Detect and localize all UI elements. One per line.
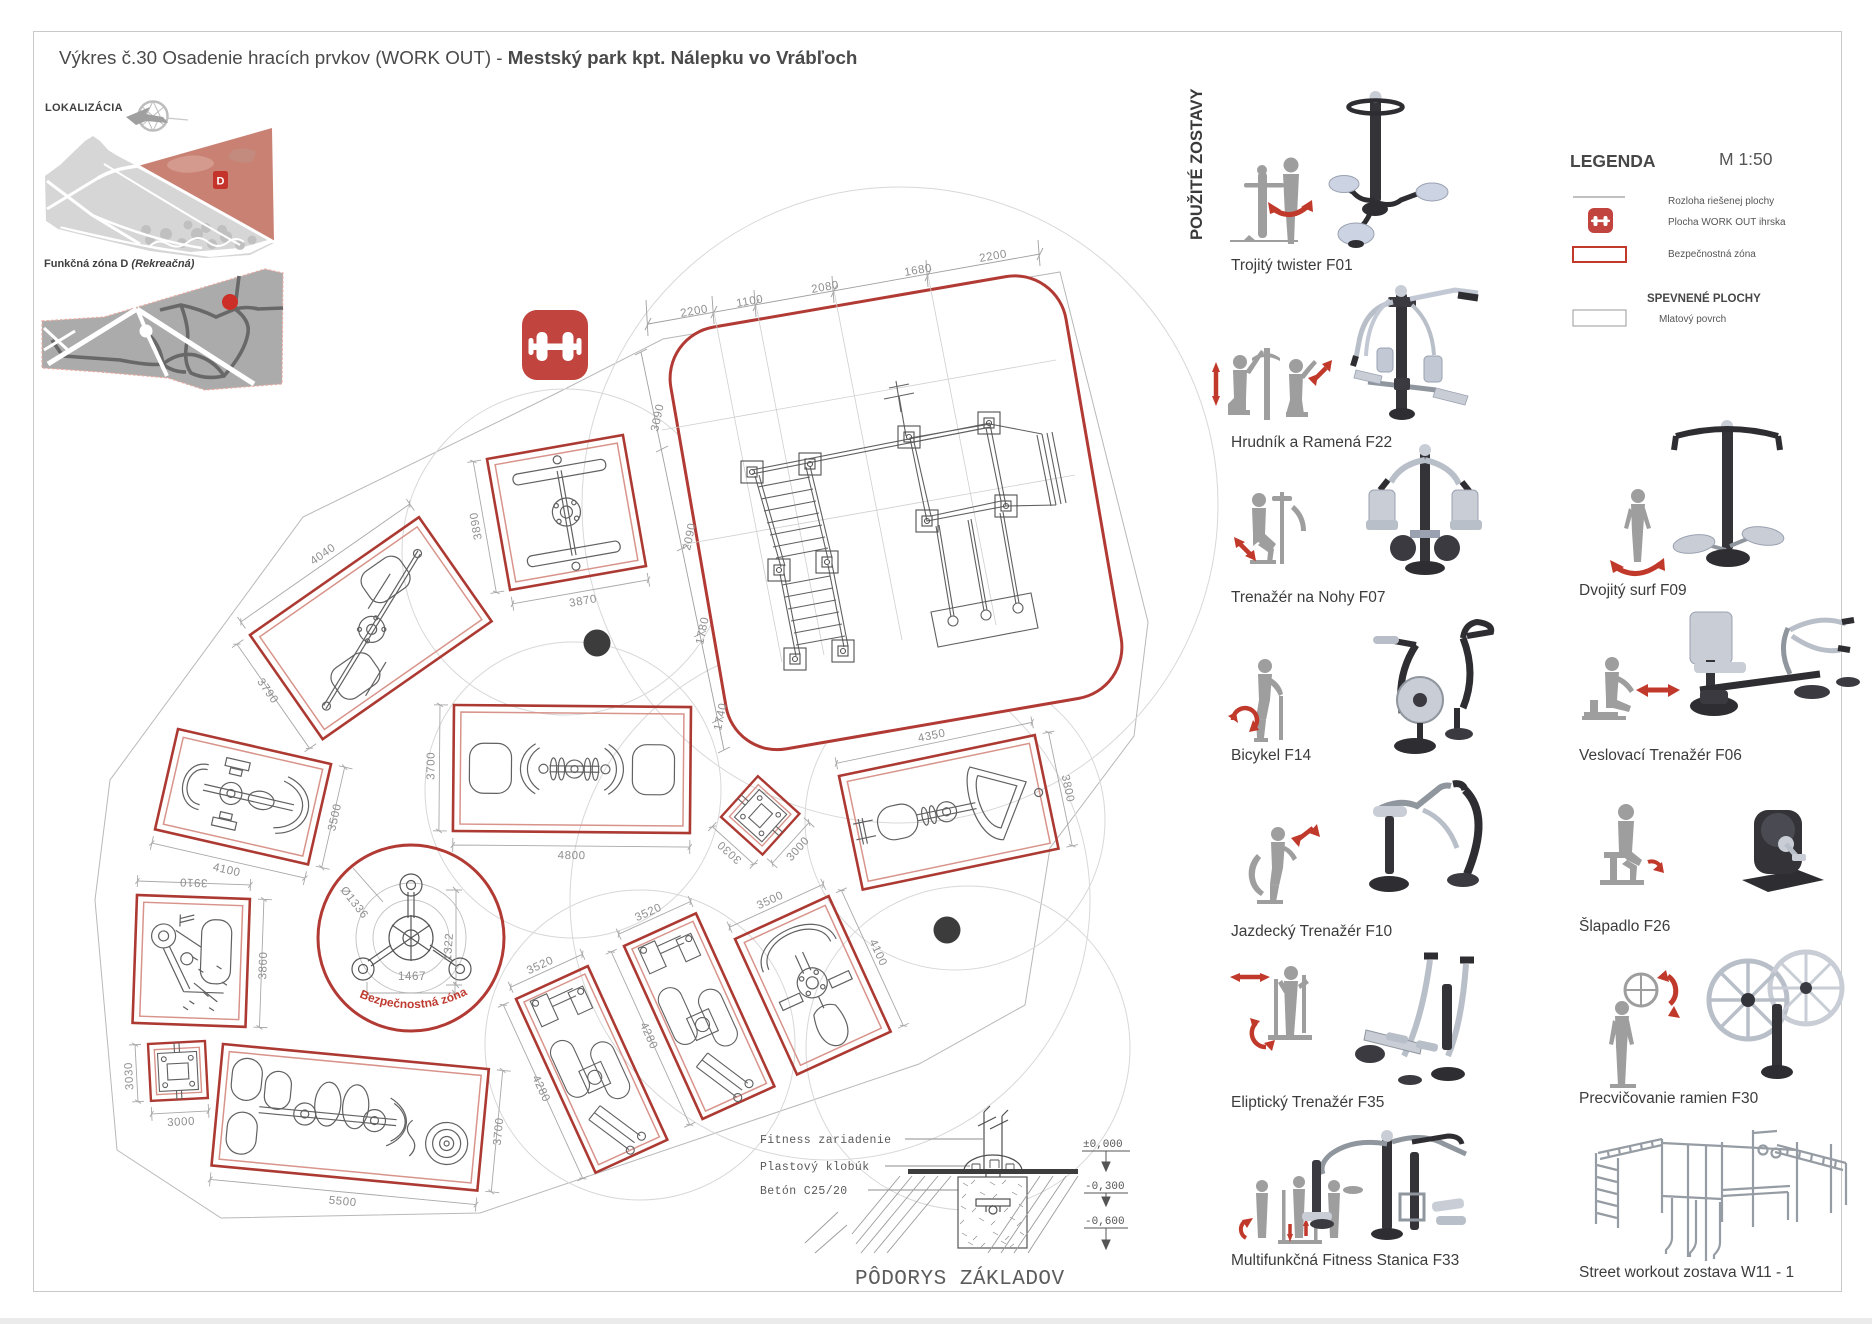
svg-text:Fitness zariadenie: Fitness zariadenie: [760, 1134, 891, 1147]
svg-text:SPEVNENÉ PLOCHY: SPEVNENÉ PLOCHY: [1647, 292, 1761, 305]
svg-text:Jazdecký Trenažér F10: Jazdecký Trenažér F10: [1231, 923, 1392, 940]
svg-text:Veslovací Trenažér F06: Veslovací Trenažér F06: [1579, 747, 1742, 764]
svg-text:PÔDORYS ZÁKLADOV: PÔDORYS ZÁKLADOV: [855, 1267, 1065, 1291]
svg-text:Dvojitý surf F09: Dvojitý surf F09: [1579, 582, 1687, 599]
svg-text:LOKALIZÁCIA: LOKALIZÁCIA: [45, 101, 123, 114]
svg-text:M 1:50: M 1:50: [1719, 149, 1773, 169]
svg-text:Šlapadlo F26: Šlapadlo F26: [1579, 918, 1670, 935]
svg-text:POUŽITÉ ZOSTAVY: POUŽITÉ ZOSTAVY: [1187, 88, 1206, 240]
svg-text:4800: 4800: [558, 850, 586, 862]
svg-text:Mlatový povrch: Mlatový povrch: [1659, 314, 1726, 325]
svg-text:D: D: [217, 176, 225, 188]
svg-text:Multifunkčná Fitness Stanica F: Multifunkčná Fitness Stanica F33: [1231, 1252, 1459, 1269]
svg-text:-0,600: -0,600: [1085, 1216, 1125, 1228]
svg-text:Bicykel F14: Bicykel F14: [1231, 747, 1311, 764]
svg-text:±0,000: ±0,000: [1083, 1139, 1123, 1151]
svg-text:Funkčná zóna D (Rekreačná): Funkčná zóna D (Rekreačná): [44, 258, 195, 270]
svg-text:3860: 3860: [257, 951, 270, 979]
svg-text:3910: 3910: [179, 875, 207, 888]
svg-text:Hrudník a Ramená F22: Hrudník a Ramená F22: [1231, 434, 1392, 451]
svg-text:Plastový klobúk: Plastový klobúk: [760, 1161, 870, 1174]
svg-text:Výkres č.30 Osadenie hracích p: Výkres č.30 Osadenie hracích prvkov (WOR…: [59, 47, 857, 68]
svg-text:Bezpečnostná zóna: Bezpečnostná zóna: [1668, 249, 1756, 260]
svg-text:Rozloha riešenej plochy: Rozloha riešenej plochy: [1668, 196, 1774, 207]
svg-text:1467: 1467: [398, 971, 426, 983]
svg-text:Plocha WORK OUT ihrska: Plocha WORK OUT ihrska: [1668, 217, 1786, 228]
svg-text:Eliptický Trenažér F35: Eliptický Trenažér F35: [1231, 1094, 1384, 1111]
svg-text:3030: 3030: [123, 1062, 136, 1091]
svg-text:Betón C25/20: Betón C25/20: [760, 1185, 848, 1198]
svg-text:Street workout zostava W11 - 1: Street workout zostava W11 - 1: [1579, 1264, 1794, 1281]
svg-text:LEGENDA: LEGENDA: [1570, 151, 1656, 171]
svg-text:3700: 3700: [425, 752, 437, 780]
svg-text:-0,300: -0,300: [1085, 1181, 1125, 1193]
svg-text:3000: 3000: [167, 1116, 196, 1129]
svg-text:1322: 1322: [442, 932, 456, 961]
svg-text:Trenažér na Nohy F07: Trenažér na Nohy F07: [1231, 589, 1386, 606]
svg-text:Trojitý twister F01: Trojitý twister F01: [1231, 257, 1353, 274]
svg-text:Precvičovanie ramien F30: Precvičovanie ramien F30: [1579, 1090, 1759, 1107]
